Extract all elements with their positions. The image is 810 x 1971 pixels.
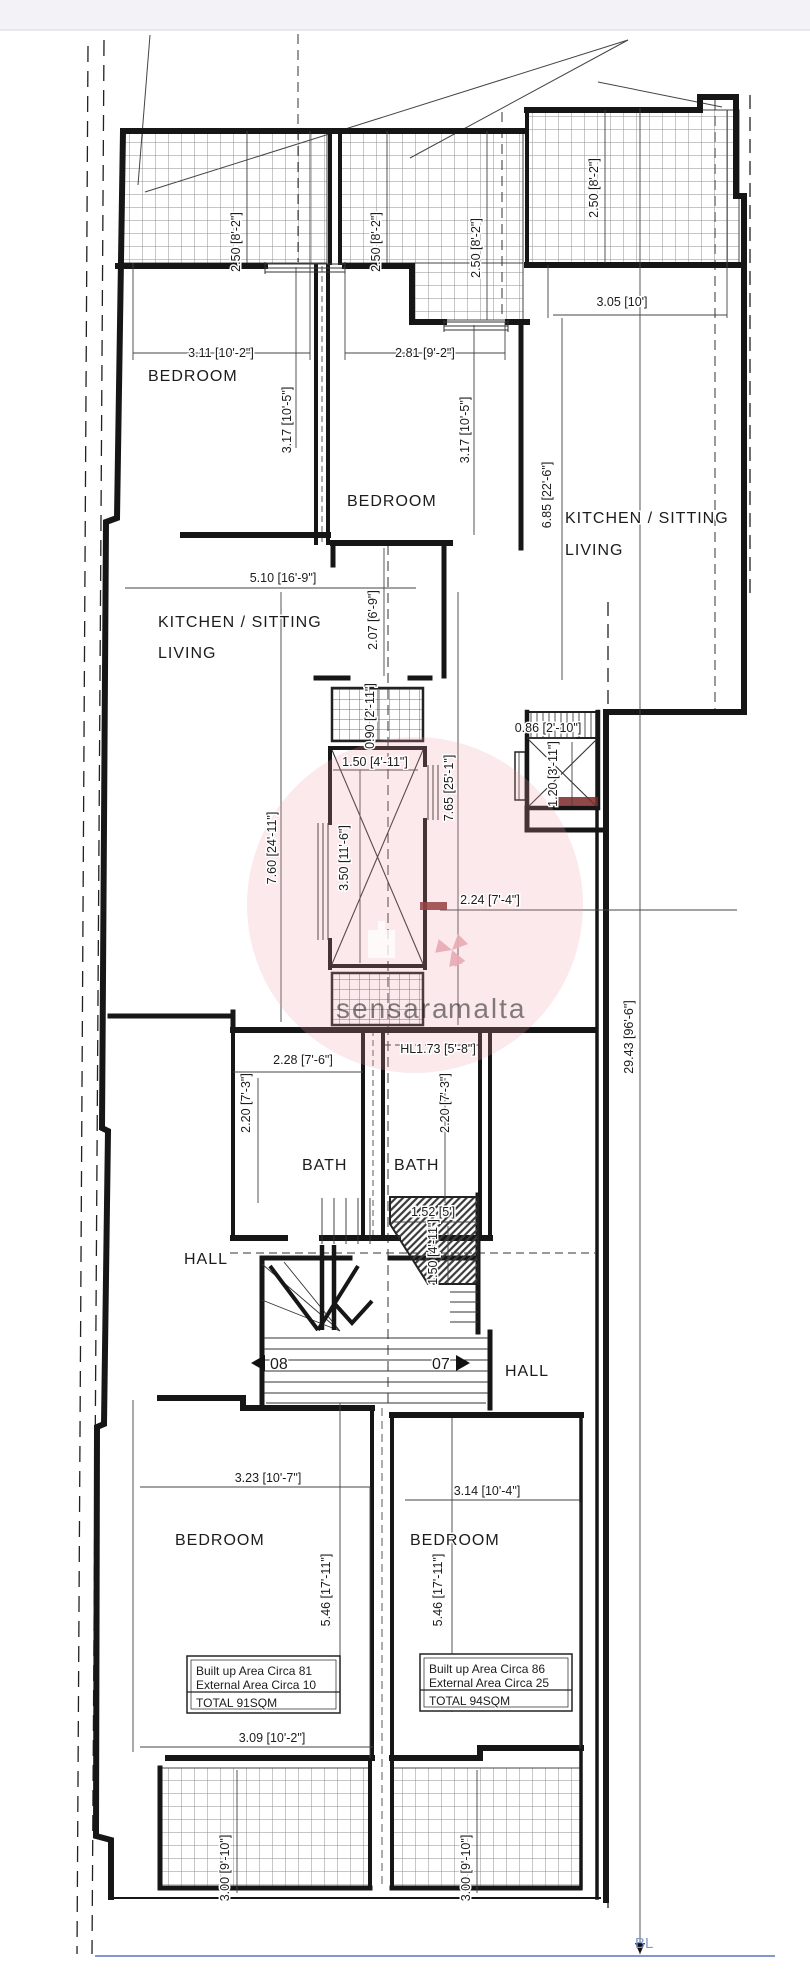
area-left-line2: External Area Circa 10 xyxy=(196,1678,316,1692)
room-label-bedroom-top-mid: BEDROOM xyxy=(347,493,437,510)
dim-bath-left-depth: 2.20 [7'-3"] xyxy=(239,1073,253,1133)
room-label-bedroom-top-left: BEDROOM xyxy=(148,368,238,385)
dim-bath-right-depth: 2.20 [7'-3"] xyxy=(438,1073,452,1133)
dim-bedroom-br-width: 3.14 [10'-4"] xyxy=(454,1484,521,1498)
dim-bedroom-bl-depth: 5.46 [17'-11"] xyxy=(319,1554,333,1627)
room-label-kitchen-left-2: LIVING xyxy=(158,645,216,662)
watermark-text-1: sensara xyxy=(336,993,450,1024)
dim-terrace-bl-depth: 3.00 [9'-10"] xyxy=(218,1835,232,1902)
room-label-kitchen-right-2: LIVING xyxy=(565,542,623,559)
room-label-kitchen-right-1: KITCHEN / SITTING xyxy=(565,510,729,527)
dim-head-level: HL1.73 [5'-8"] xyxy=(400,1042,476,1056)
building-line-label: BL xyxy=(635,1935,653,1952)
dim-stair-width: 1.52 [5'] xyxy=(411,1205,455,1219)
room-label-bedroom-bottom-right: BEDROOM xyxy=(410,1532,500,1549)
dim-bedroom-tm-width: 2.81 [9'-2"] xyxy=(395,346,455,360)
dim-bedroom-br-depth: 5.46 [17'-11"] xyxy=(431,1554,445,1627)
area-left-line1: Built up Area Circa 81 xyxy=(196,1664,312,1678)
room-label-bedroom-bottom-left: BEDROOM xyxy=(175,1532,265,1549)
dim-overall-depth: 29.43 [96'-6"] xyxy=(622,1000,636,1074)
room-label-bath-left: BATH xyxy=(302,1157,347,1174)
area-box-left: Built up Area Circa 81 External Area Cir… xyxy=(187,1656,340,1713)
room-label-bath-right: BATH xyxy=(394,1157,439,1174)
dim-kitchen-left-width: 5.10 [16'-9"] xyxy=(250,571,317,585)
dim-lift-width: 0.86 [2'-10"] xyxy=(515,721,582,735)
area-left-total: TOTAL 91SQM xyxy=(196,1696,277,1710)
dim-shaft-width: 1.50 [4'-11"] xyxy=(342,755,408,769)
floor-plan-drawing: 08 07 sensara malta xyxy=(0,0,810,1966)
watermark: sensara malta xyxy=(247,737,583,1073)
dim-apartment-right-depth: 7.65 [25'-1"] xyxy=(442,755,456,822)
room-label-hall-left: HALL xyxy=(184,1251,228,1268)
area-box-right: Built up Area Circa 86 External Area Cir… xyxy=(420,1654,572,1711)
dim-terrace-top-mid-right: 2.50 [8'-2"] xyxy=(469,218,483,278)
dim-vestibule-depth: 2.07 [6'-9"] xyxy=(366,590,380,650)
dim-kitchen-right-depth: 6.85 [22'-6"] xyxy=(540,462,554,529)
top-gray-band xyxy=(0,0,810,30)
watermark-text-2: malta xyxy=(448,993,526,1024)
dim-terrace-top-left: 2.50 [8'-2"] xyxy=(229,212,243,272)
dim-kitchen-right-width: 3.05 [10'] xyxy=(596,295,647,309)
dim-bedroom-bl-width: 3.23 [10'-7"] xyxy=(235,1471,302,1485)
dim-duct-depth: 0.90 [2'-11"] xyxy=(363,683,377,749)
dim-bedroom-tl-width: 3.11 [10'-2"] xyxy=(188,346,254,360)
area-right-line1: Built up Area Circa 86 xyxy=(429,1662,545,1676)
dim-terrace-bottom-width: 3.09 [10'-2"] xyxy=(239,1731,306,1745)
dim-terrace-br-depth: 3.00 [9'-10"] xyxy=(459,1835,473,1902)
dim-lift-depth: 1.20 [3'-11"] xyxy=(546,741,560,807)
area-right-total: TOTAL 94SQM xyxy=(429,1694,510,1708)
dim-shaft-depth: 3.50 [11'-6"] xyxy=(337,825,351,891)
dim-bedroom-tl-depth: 3.17 [10'-5"] xyxy=(280,387,294,454)
stair-flight-07-label: 07 xyxy=(432,1356,450,1373)
dim-stair-depth: 1.50 [4'-11"] xyxy=(426,1219,440,1285)
dim-terrace-top-mid: 2.50 [8'-2"] xyxy=(369,212,383,272)
room-label-kitchen-left-1: KITCHEN / SITTING xyxy=(158,614,322,631)
dim-terrace-top-right: 2.50 [8'-2"] xyxy=(587,158,601,218)
dim-bath-width: 2.28 [7'-6"] xyxy=(273,1053,333,1067)
dim-bedroom-tm-depth: 3.17 [10'-5"] xyxy=(458,397,472,464)
area-right-line2: External Area Circa 25 xyxy=(429,1676,549,1690)
room-label-hall-right: HALL xyxy=(505,1363,549,1380)
stair-flight-08-label: 08 xyxy=(270,1356,288,1373)
dim-apartment-left-depth: 7.60 [24'-11"] xyxy=(265,812,279,885)
dim-backyard-width: 2.24 [7'-4"] xyxy=(460,893,520,907)
